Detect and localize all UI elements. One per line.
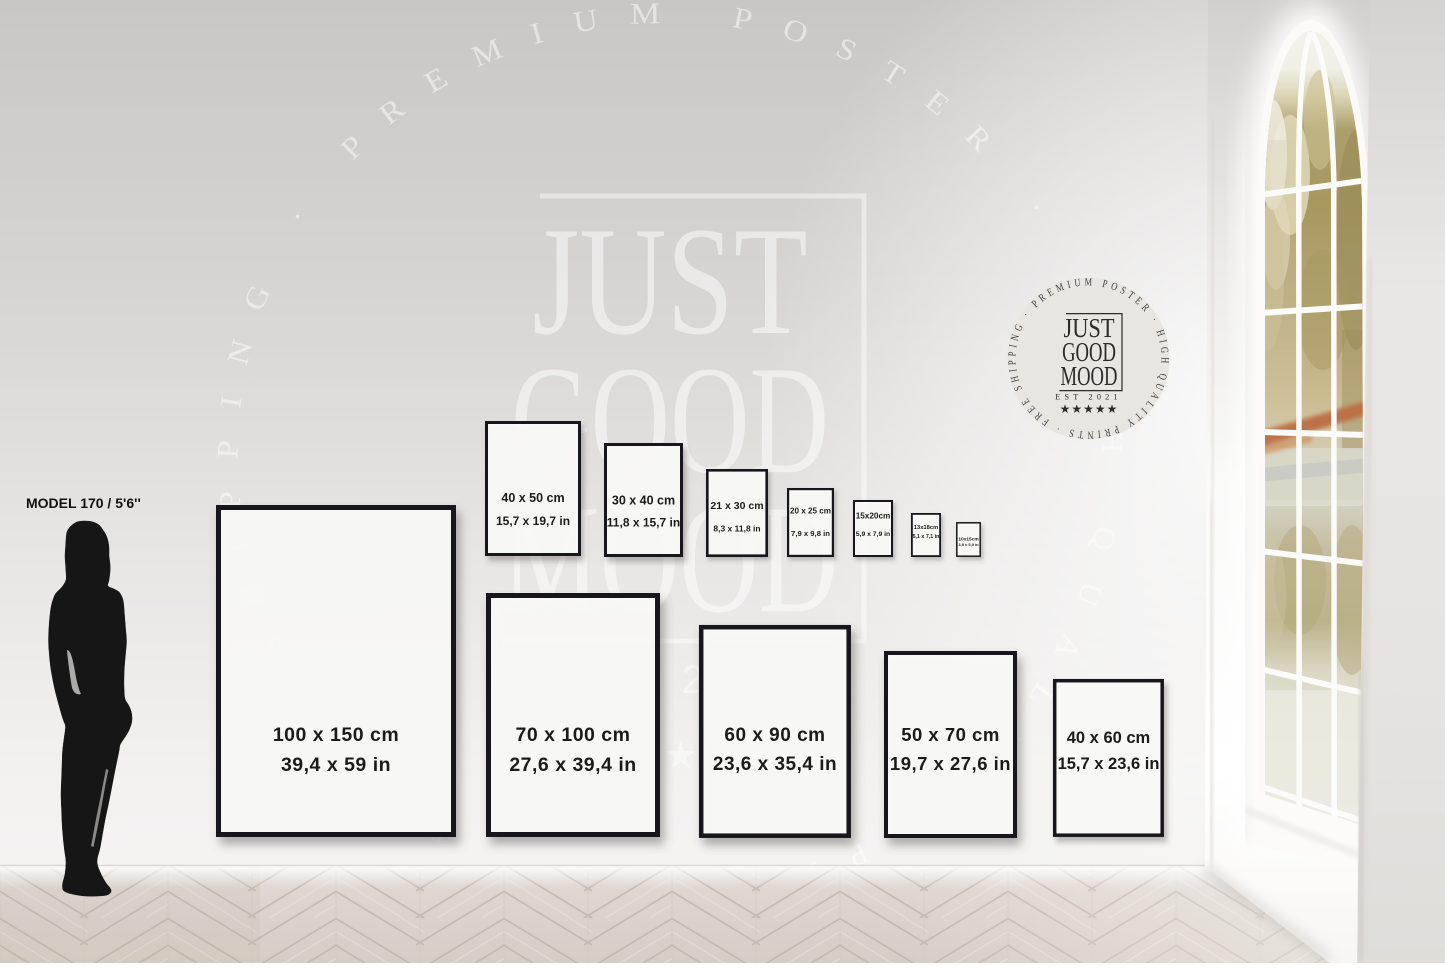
svg-text:19,7 x 27,6 in: 19,7 x 27,6 in bbox=[890, 753, 1011, 774]
svg-text:100 x 150 cm: 100 x 150 cm bbox=[273, 724, 399, 746]
svg-text:EST 2021: EST 2021 bbox=[1055, 393, 1121, 402]
svg-text:70 x 100 cm: 70 x 100 cm bbox=[515, 724, 630, 746]
svg-text:21 x 30 cm: 21 x 30 cm bbox=[710, 500, 763, 512]
svg-text:7,9 x 9,8 in: 7,9 x 9,8 in bbox=[791, 529, 830, 538]
svg-text:5,9 x 7,9 in: 5,9 x 7,9 in bbox=[856, 531, 890, 538]
svg-text:MOOD: MOOD bbox=[1061, 362, 1118, 392]
svg-text:3,9 x 5,9 in: 3,9 x 5,9 in bbox=[958, 542, 979, 547]
svg-text:40 x 60 cm: 40 x 60 cm bbox=[1067, 729, 1150, 747]
svg-text:15,7 x 23,6 in: 15,7 x 23,6 in bbox=[1058, 755, 1160, 773]
svg-text:27,6 x 39,4 in: 27,6 x 39,4 in bbox=[509, 754, 636, 776]
svg-text:39,4 x 59 in: 39,4 x 59 in bbox=[281, 754, 391, 776]
svg-text:5,1 x 7,1 in: 5,1 x 7,1 in bbox=[913, 534, 940, 540]
svg-text:MODEL 170 / 5'6'': MODEL 170 / 5'6'' bbox=[26, 495, 141, 511]
svg-text:40 x 50 cm: 40 x 50 cm bbox=[501, 491, 564, 505]
svg-text:50 x 70 cm: 50 x 70 cm bbox=[901, 724, 1000, 745]
svg-text:8,3 x 11,8 in: 8,3 x 11,8 in bbox=[713, 524, 760, 534]
svg-text:11,8 x 15,7 in: 11,8 x 15,7 in bbox=[607, 516, 680, 530]
svg-text:13x18cm: 13x18cm bbox=[914, 525, 939, 531]
svg-text:23,6 x 35,4 in: 23,6 x 35,4 in bbox=[713, 754, 837, 775]
svg-text:60 x 90 cm: 60 x 90 cm bbox=[724, 725, 825, 746]
svg-text:15,7 x 19,7 in: 15,7 x 19,7 in bbox=[496, 514, 570, 528]
svg-text:30 x 40 cm: 30 x 40 cm bbox=[612, 494, 675, 508]
svg-text:★★★★★: ★★★★★ bbox=[1060, 402, 1119, 416]
svg-text:20 x 25 cm: 20 x 25 cm bbox=[790, 507, 831, 516]
svg-text:15x20cm: 15x20cm bbox=[856, 511, 891, 520]
